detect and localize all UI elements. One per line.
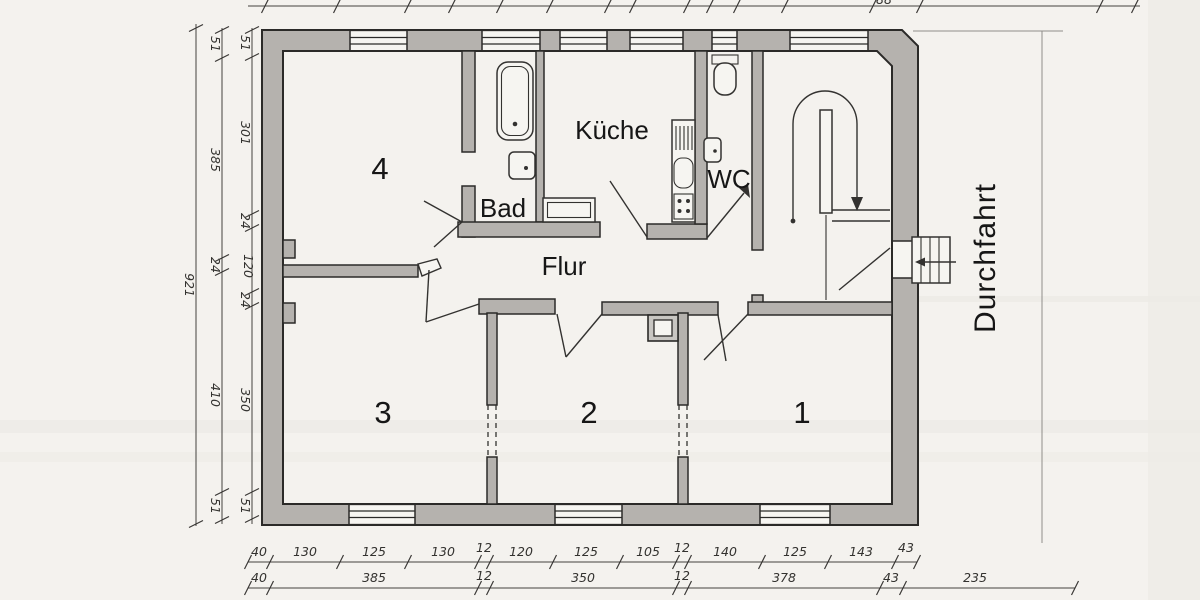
dimension-label: 410 <box>208 383 223 407</box>
dimension-label: 235 <box>963 570 987 585</box>
scan-streak <box>0 420 1200 433</box>
wall-room2-room1-upper <box>678 313 688 405</box>
dimension-label: 24 <box>238 292 253 308</box>
window <box>760 504 830 525</box>
window <box>560 30 607 51</box>
wall-pilaster <box>283 303 295 323</box>
kitchen-bench <box>543 198 595 222</box>
wall-room3-room2-lower <box>487 457 497 504</box>
wc-sink-icon <box>704 138 721 162</box>
bathtub-icon <box>497 62 533 140</box>
dimension-label: 130 <box>431 544 455 559</box>
dimension-label: 350 <box>571 570 595 585</box>
dimension-label: 43 <box>883 570 899 585</box>
wall-kueche-wc <box>695 51 707 224</box>
dimension-label: 130 <box>293 544 317 559</box>
wall-flur-south-middle <box>602 302 718 315</box>
room-label-flur: Flur <box>542 251 587 281</box>
room-label-3: 3 <box>374 395 391 430</box>
dimension-label: 350 <box>238 388 253 412</box>
dimension-label-clipped: 88 <box>876 0 892 7</box>
room-label-2: 2 <box>580 395 597 430</box>
window <box>350 30 407 51</box>
dimension-label: 125 <box>783 544 807 559</box>
wall-room4-bad-upper <box>462 51 475 152</box>
window <box>482 30 540 51</box>
wc-sink-drain <box>713 149 717 153</box>
dimension-label: 12 <box>476 568 492 583</box>
dimension-label: 120 <box>509 544 533 559</box>
stair-spine-wall <box>820 110 832 213</box>
stove-burner <box>678 209 682 213</box>
wall-room3-room2-upper <box>487 313 497 405</box>
dimension-label: 24 <box>238 213 253 229</box>
room-label-kueche: Küche <box>575 115 649 145</box>
bad-sink-icon <box>509 152 535 179</box>
window <box>630 30 683 51</box>
dimension-label: 12 <box>674 540 690 555</box>
bathtub-drain <box>513 122 518 127</box>
scan-streak <box>0 452 1200 462</box>
room-label-bad: Bad <box>480 193 526 223</box>
room-label-wc: WC <box>707 164 750 194</box>
dimension-label: 105 <box>636 544 660 559</box>
durchfahrt-label: Durchfahrt <box>969 183 1002 333</box>
dimension-label: 140 <box>713 544 737 559</box>
dimension-label: 120 <box>241 254 256 278</box>
window <box>349 504 415 525</box>
dimension-label: 40 <box>251 544 267 559</box>
stove-burner <box>678 199 682 203</box>
wall-flur-south-west <box>479 299 555 314</box>
dimension-label: 51 <box>238 498 253 514</box>
dimension-label-total: 921 <box>182 273 197 297</box>
dimension-label: 51 <box>208 498 223 514</box>
dimension-label: 385 <box>208 148 223 172</box>
dimension-label: 40 <box>251 570 267 585</box>
dimension-label: 51 <box>208 36 223 52</box>
stove-burner <box>686 209 690 213</box>
wall-room4-south <box>283 265 418 277</box>
dimension-label: 143 <box>849 544 873 559</box>
dimension-label: 24 <box>208 257 223 273</box>
toilet-icon <box>714 63 736 95</box>
tiled-stove-inner <box>654 320 672 336</box>
dimension-label: 301 <box>238 121 253 145</box>
entrance-opening <box>892 241 913 278</box>
dimension-label: 12 <box>674 568 690 583</box>
window <box>712 30 737 51</box>
dimension-label: 385 <box>362 570 386 585</box>
window <box>555 504 622 525</box>
stove-burner <box>686 199 690 203</box>
dimension-label: 378 <box>772 570 796 585</box>
page-edge-shade <box>1148 0 1200 600</box>
wall-pilaster <box>283 240 295 258</box>
floor-plan-scan: 51 301 24 120 24 350 51 51 385 24 410 51… <box>0 0 1200 600</box>
room-label-4: 4 <box>371 151 388 186</box>
wall-flur-south-east <box>748 302 892 315</box>
stair-arrow-start-dot <box>791 219 796 224</box>
window <box>790 30 868 51</box>
dimension-label: 43 <box>898 540 914 555</box>
dimension-label: 51 <box>238 35 253 51</box>
wall-bad-kueche <box>536 51 544 222</box>
entrance-steps <box>912 237 950 283</box>
wall-wc-stair <box>752 51 763 250</box>
room-label-1: 1 <box>793 395 810 430</box>
dimension-label: 12 <box>476 540 492 555</box>
bad-sink-drain <box>524 166 528 170</box>
wall-room2-room1-lower <box>678 457 688 504</box>
wall-kueche-south-right <box>647 224 707 239</box>
wall-bad-kueche-south <box>458 222 600 237</box>
dimension-label: 125 <box>362 544 386 559</box>
dimension-label: 125 <box>574 544 598 559</box>
